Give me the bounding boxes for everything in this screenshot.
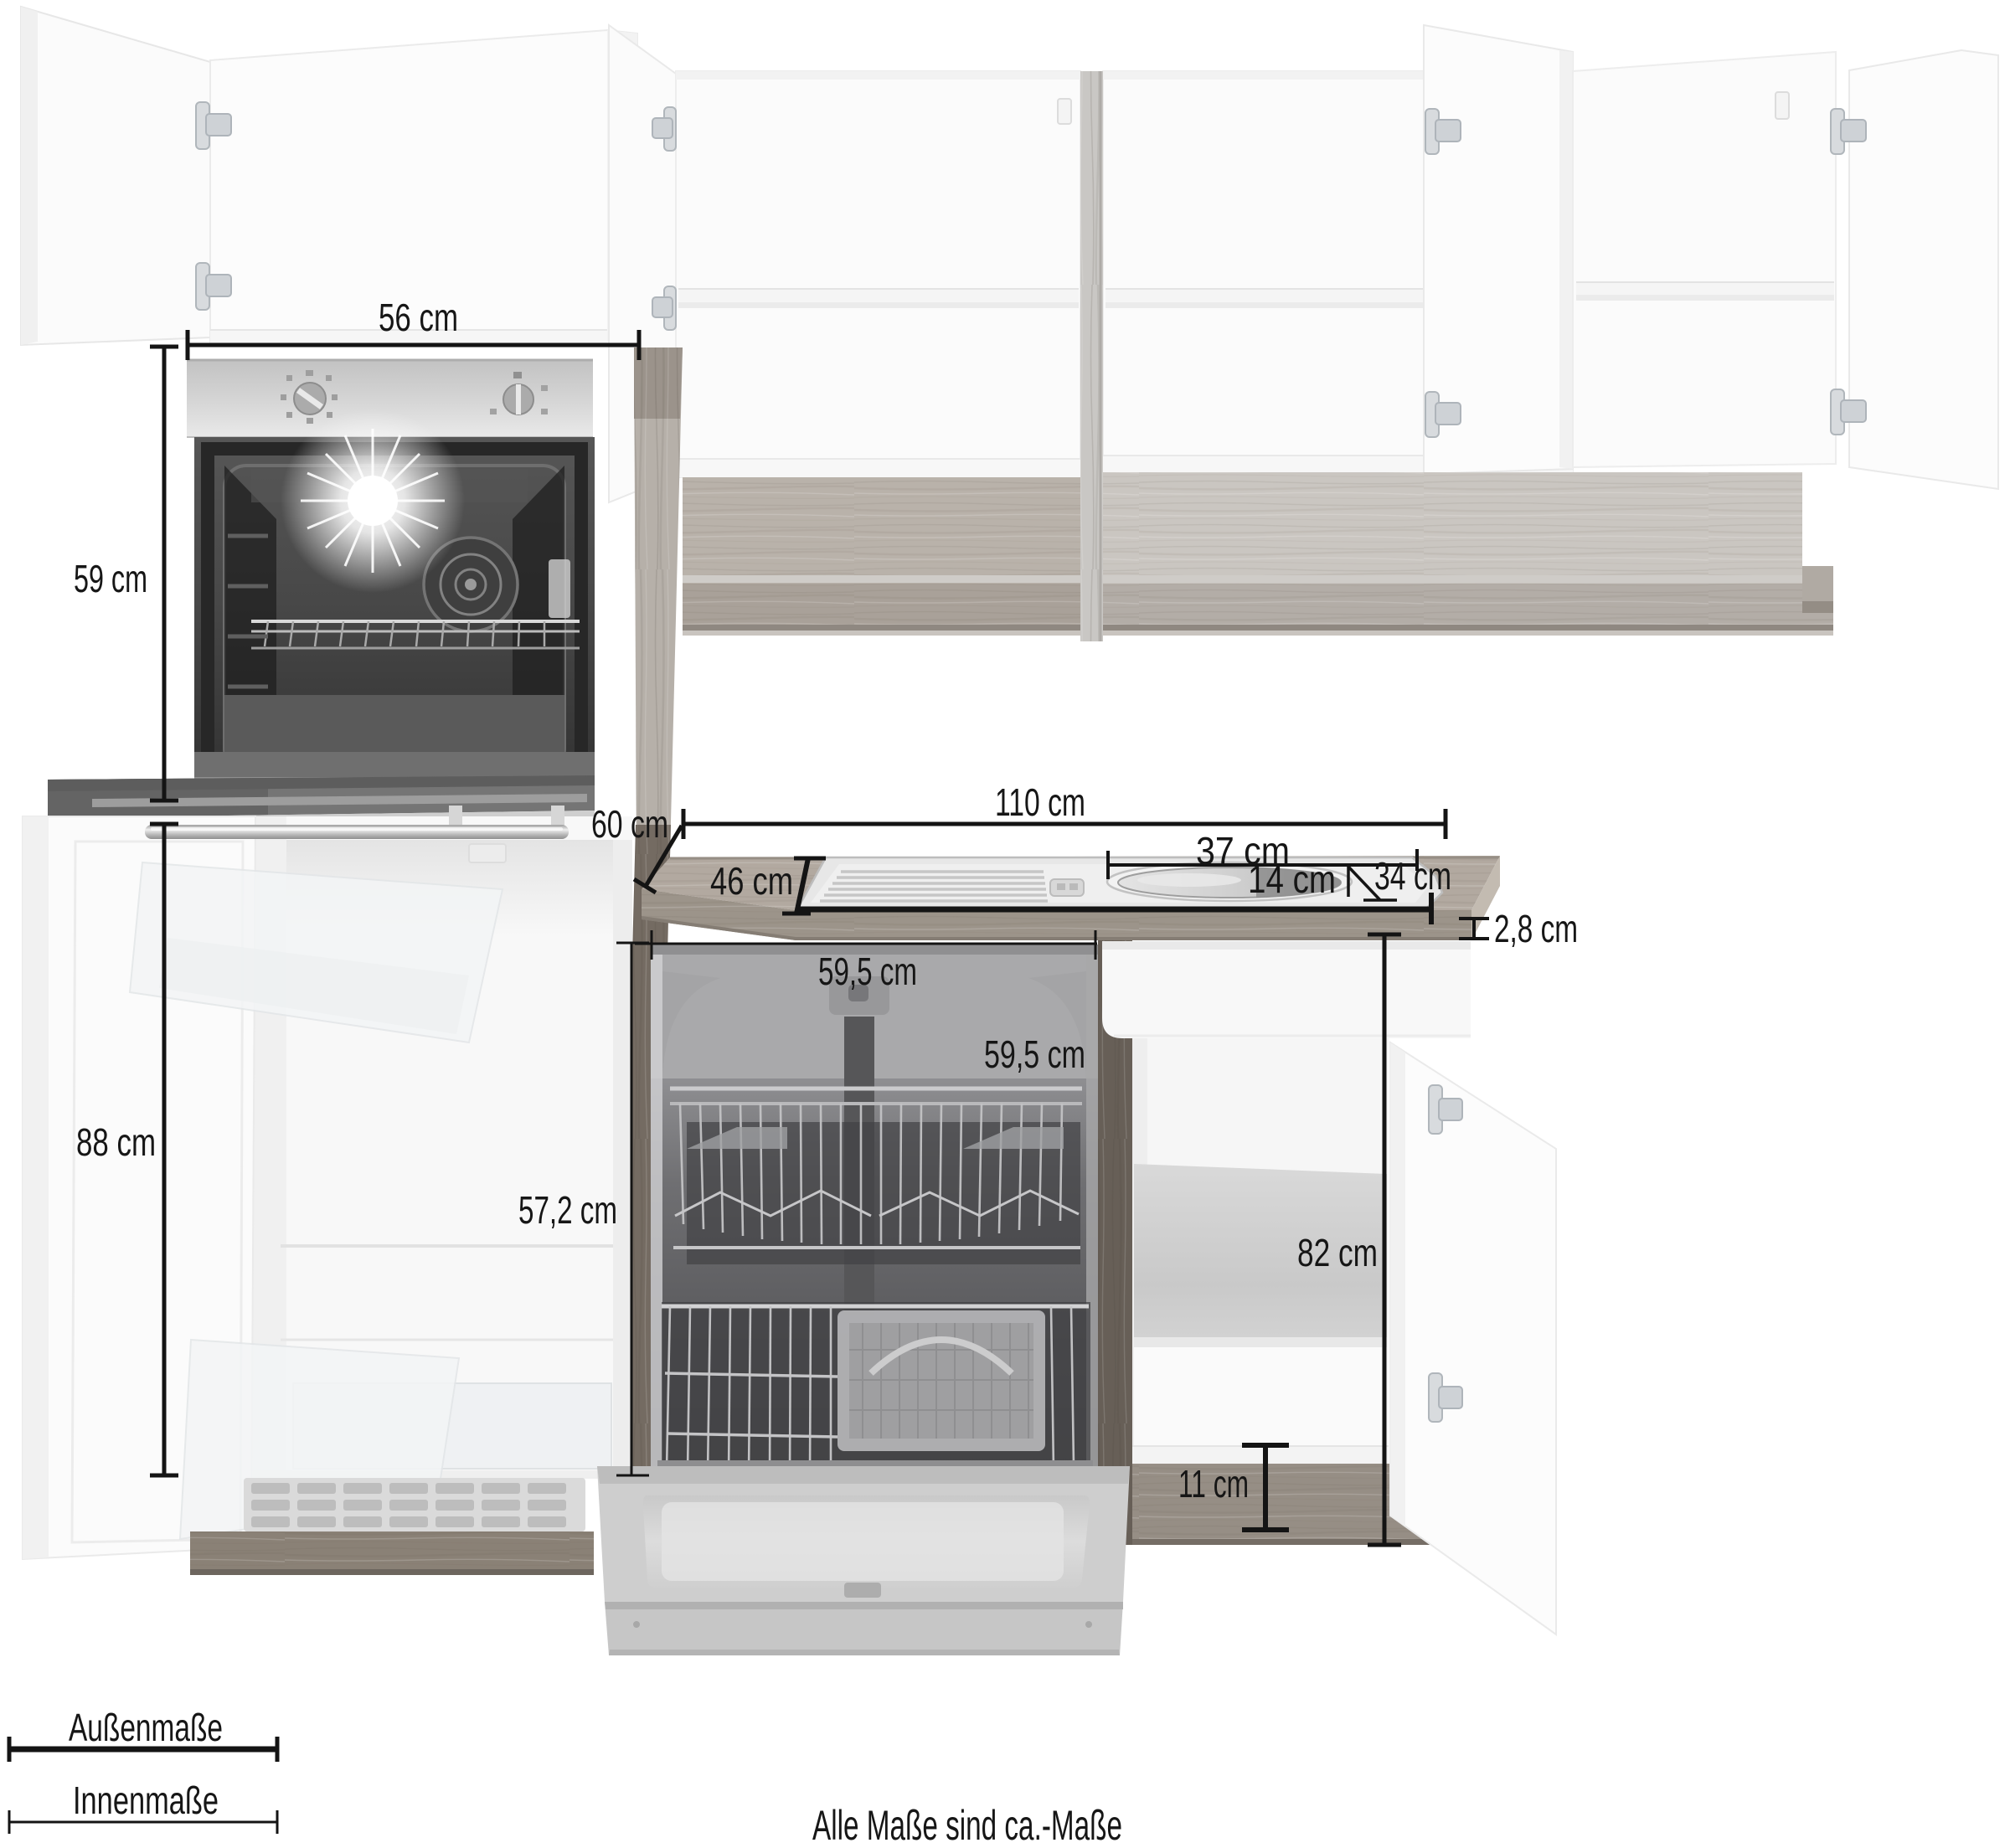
svg-text:Alle Maße sind ca.-Maße: Alle Maße sind ca.-Maße: [812, 1802, 1122, 1848]
svg-text:14 cm: 14 cm: [1248, 857, 1336, 901]
svg-text:34 cm: 34 cm: [1374, 854, 1451, 898]
svg-text:59,5 cm: 59,5 cm: [818, 950, 917, 993]
svg-text:11 cm: 11 cm: [1178, 1462, 1249, 1506]
svg-text:46 cm: 46 cm: [710, 859, 793, 903]
svg-text:110 cm: 110 cm: [995, 780, 1085, 824]
svg-text:59 cm: 59 cm: [74, 557, 147, 600]
svg-text:59,5 cm: 59,5 cm: [984, 1032, 1085, 1076]
svg-text:57,2 cm: 57,2 cm: [518, 1188, 617, 1232]
svg-text:82 cm: 82 cm: [1297, 1231, 1378, 1274]
svg-text:60 cm: 60 cm: [591, 802, 668, 846]
svg-text:56 cm: 56 cm: [379, 296, 458, 339]
svg-text:Innenmaße: Innenmaße: [73, 1779, 219, 1822]
svg-text:2,8 cm: 2,8 cm: [1494, 907, 1578, 950]
svg-text:88 cm: 88 cm: [76, 1120, 156, 1164]
svg-text:Außenmaße: Außenmaße: [69, 1706, 223, 1749]
